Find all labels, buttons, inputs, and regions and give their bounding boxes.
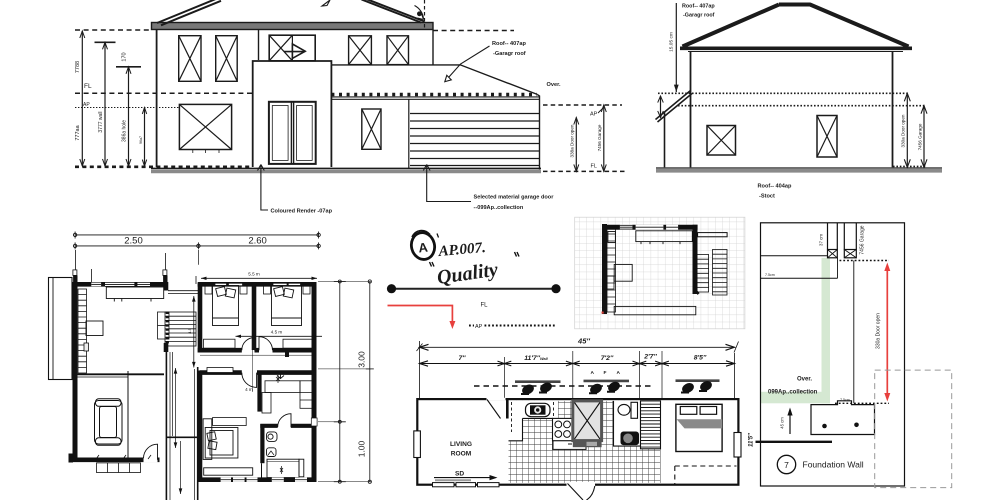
svg-text:099Ap..collection: 099Ap..collection — [768, 390, 818, 396]
svg-text:A: A — [617, 370, 621, 376]
svg-text:96a7: 96a7 — [139, 136, 143, 144]
svg-text:Roof-- 407ap: Roof-- 407ap — [492, 41, 526, 47]
svg-text:FL: FL — [481, 302, 489, 308]
svg-text:8′5″: 8′5″ — [694, 355, 707, 362]
svg-text:Coloured Render -07ap: Coloured Render -07ap — [271, 209, 333, 215]
svg-text:-Stoct: -Stoct — [759, 194, 775, 200]
svg-text:Foundation Wall: Foundation Wall — [803, 460, 864, 470]
svg-text:45″: 45″ — [577, 337, 590, 346]
svg-text:-Garagr roof: -Garagr roof — [683, 13, 715, 19]
svg-text:ROOM: ROOM — [451, 451, 472, 458]
svg-text:2.50: 2.50 — [124, 236, 143, 247]
svg-text:AP: AP — [83, 102, 90, 108]
svg-text:2.60: 2.60 — [248, 236, 267, 247]
svg-text:2′7″: 2′7″ — [643, 354, 657, 361]
svg-text:FL: FL — [84, 83, 92, 90]
svg-text:FL: FL — [591, 164, 597, 170]
svg-text:4-5: 4-5 — [187, 327, 192, 334]
svg-text:AP: AP — [590, 112, 598, 118]
svg-text:11′7″Wall: 11′7″Wall — [524, 355, 548, 362]
svg-text:7456 Garage: 7456 Garage — [597, 124, 602, 151]
svg-text:7456 Garage: 7456 Garage — [918, 123, 923, 150]
svg-text:Over.: Over. — [547, 82, 561, 88]
svg-text:1.00: 1.00 — [357, 440, 367, 457]
svg-text:A: A — [591, 370, 595, 376]
svg-text:15.05 cm: 15.05 cm — [669, 32, 675, 52]
svg-text:7456 Garage: 7456 Garage — [860, 225, 866, 254]
svg-text:F: F — [604, 370, 607, 376]
svg-text:4 m: 4 m — [245, 387, 253, 392]
svg-text:LIVING: LIVING — [450, 441, 472, 448]
svg-text:330a Door open: 330a Door open — [876, 313, 882, 349]
svg-text:7788: 7788 — [75, 61, 81, 73]
svg-text:777aa: 777aa — [75, 124, 81, 140]
svg-text:37 cm: 37 cm — [819, 234, 824, 246]
svg-text:3.00: 3.00 — [357, 351, 367, 368]
svg-text:SD: SD — [455, 471, 464, 478]
svg-text:170: 170 — [122, 52, 128, 61]
svg-text:7′2″: 7′2″ — [601, 355, 614, 362]
svg-text:386a hole: 386a hole — [122, 120, 128, 142]
svg-text:11′5″: 11′5″ — [749, 432, 755, 447]
svg-text:338a Door open: 338a Door open — [570, 124, 575, 157]
svg-text:-Garagr roof: -Garagr roof — [493, 51, 526, 57]
svg-text:5.5 m: 5.5 m — [248, 271, 260, 276]
svg-text:Roof-- 407ap: Roof-- 407ap — [682, 4, 715, 10]
svg-text:7: 7 — [784, 460, 789, 470]
svg-text:330a Door open: 330a Door open — [901, 114, 906, 147]
svg-text:7″: 7″ — [458, 355, 466, 362]
svg-text:Selected material garage door: Selected material garage door — [474, 195, 555, 201]
svg-text:Over.: Over. — [797, 377, 812, 383]
svg-text:45 cm: 45 cm — [780, 417, 785, 429]
svg-text:3777 wall: 3777 wall — [98, 111, 104, 132]
svg-text:4.5 m: 4.5 m — [271, 329, 283, 334]
svg-text:7.5cm: 7.5cm — [765, 273, 775, 277]
svg-text:Roof-- 404ap: Roof-- 404ap — [758, 184, 792, 190]
svg-text:--099Ap..collection: --099Ap..collection — [474, 205, 524, 211]
svg-text:AP: AP — [475, 324, 483, 330]
